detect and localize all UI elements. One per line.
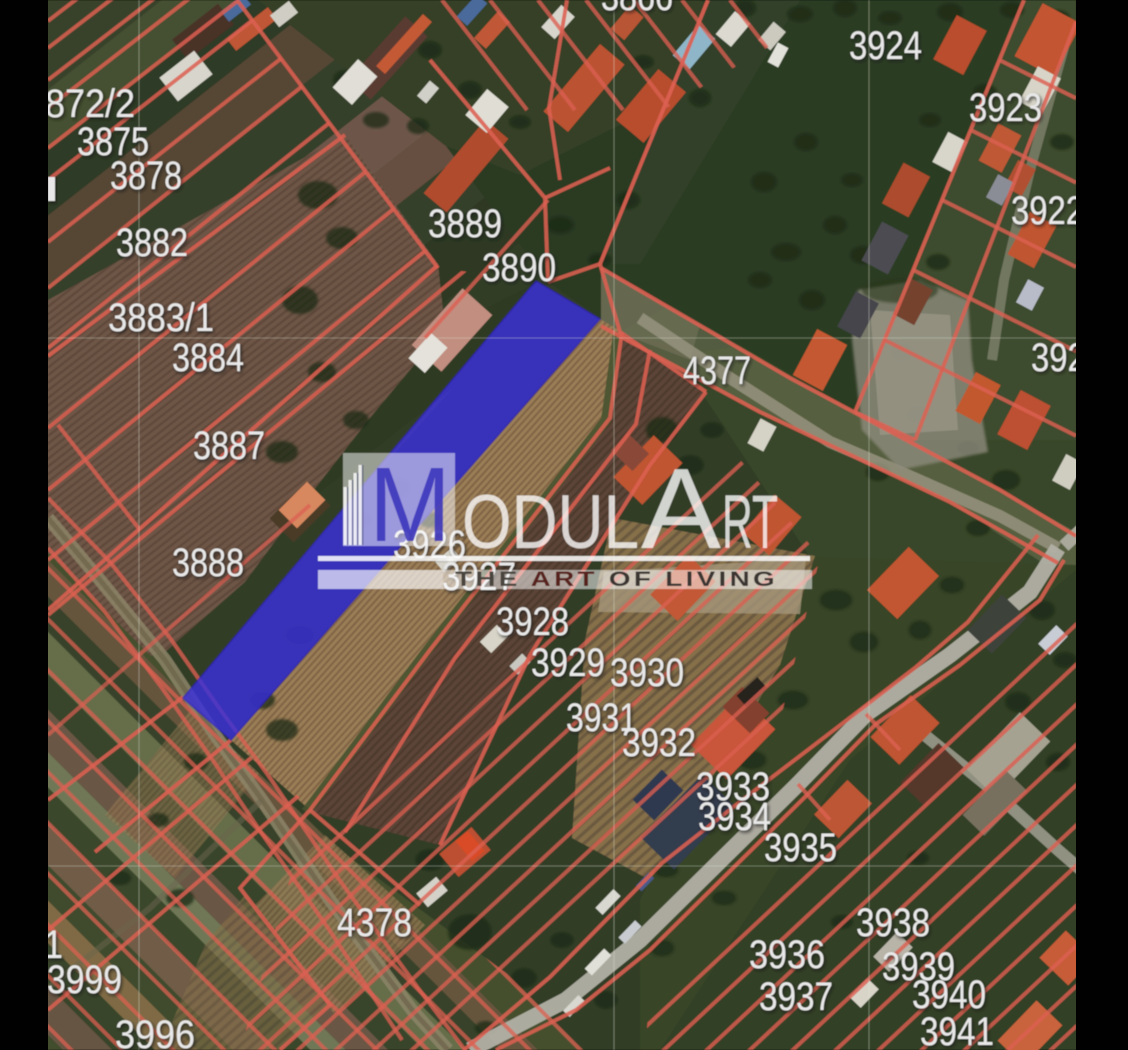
svg-text:3866: 3866: [601, 0, 673, 19]
svg-text:3884: 3884: [172, 336, 244, 380]
svg-text:3935: 3935: [764, 826, 837, 870]
svg-text:3934: 3934: [698, 795, 771, 839]
svg-text:3996: 3996: [115, 1013, 195, 1050]
svg-text:A: A: [641, 446, 721, 573]
svg-text:3932: 3932: [622, 721, 696, 765]
svg-text:3928: 3928: [496, 600, 569, 644]
svg-text:ODUL: ODUL: [462, 480, 639, 565]
svg-text:3888: 3888: [172, 541, 244, 585]
svg-text:3938: 3938: [856, 901, 930, 945]
svg-text:M: M: [369, 446, 451, 564]
svg-text:3882: 3882: [116, 221, 188, 265]
svg-text:3930: 3930: [610, 651, 684, 695]
svg-text:3887: 3887: [193, 424, 265, 468]
svg-text:3889: 3889: [428, 202, 502, 246]
svg-text:3941: 3941: [920, 1010, 994, 1050]
svg-text:3937: 3937: [759, 975, 833, 1019]
svg-text:3924: 3924: [849, 24, 922, 68]
svg-text:THE ART OF LIVING: THE ART OF LIVING: [455, 568, 778, 591]
svg-text:3883/1: 3883/1: [108, 296, 214, 340]
svg-text:3922: 3922: [1011, 189, 1084, 233]
svg-text:3923: 3923: [969, 86, 1042, 130]
svg-text:3936: 3936: [749, 933, 825, 977]
svg-text:3878: 3878: [110, 154, 182, 198]
svg-text:4378: 4378: [337, 901, 412, 945]
svg-text:3929: 3929: [531, 641, 605, 685]
svg-text:4377: 4377: [683, 349, 751, 393]
svg-text:3890: 3890: [482, 246, 556, 290]
svg-text:RT: RT: [722, 480, 778, 565]
